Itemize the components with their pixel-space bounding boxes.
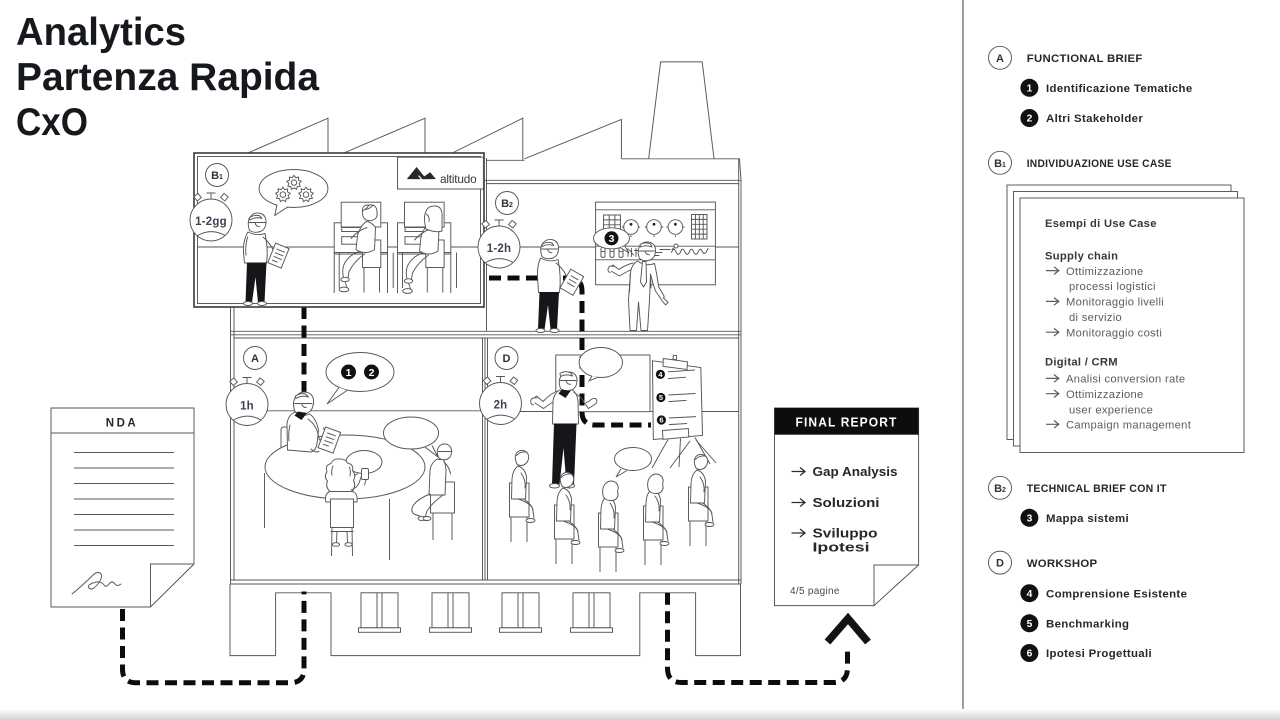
svg-text:A: A: [251, 353, 259, 365]
svg-text:D: D: [996, 558, 1004, 570]
svg-text:1-2gg: 1-2gg: [195, 216, 227, 228]
svg-text:FUNCTIONAL BRIEF: FUNCTIONAL BRIEF: [1027, 53, 1143, 65]
svg-text:Digital / CRM: Digital / CRM: [1045, 356, 1118, 368]
svg-text:Altri Stakeholder: Altri Stakeholder: [1046, 113, 1143, 125]
svg-text:4/5 pagine: 4/5 pagine: [790, 586, 840, 597]
svg-text:NDA: NDA: [106, 418, 138, 430]
svg-text:Ottimizzazione: Ottimizzazione: [1066, 389, 1144, 401]
svg-text:Monitoraggio livelli: Monitoraggio livelli: [1066, 297, 1164, 309]
svg-text:Comprensione Esistente: Comprensione Esistente: [1046, 588, 1187, 600]
svg-text:Identificazione Tematiche: Identificazione Tematiche: [1046, 83, 1193, 95]
svg-text:Sviluppo: Sviluppo: [813, 526, 878, 540]
svg-text:Ottimizzazione: Ottimizzazione: [1066, 266, 1144, 278]
svg-text:processi logistici: processi logistici: [1069, 281, 1156, 293]
svg-text:user experience: user experience: [1069, 404, 1153, 416]
svg-text:2h: 2h: [494, 400, 508, 412]
svg-text:2: 2: [1027, 114, 1033, 125]
svg-text:FINAL REPORT: FINAL REPORT: [796, 415, 898, 430]
svg-text:1: 1: [346, 367, 352, 379]
svg-text:5: 5: [1027, 619, 1033, 630]
svg-text:A: A: [996, 53, 1004, 65]
svg-text:4: 4: [1027, 589, 1033, 600]
svg-text:WORKSHOP: WORKSHOP: [1027, 558, 1098, 570]
svg-text:1-2h: 1-2h: [487, 243, 511, 255]
svg-text:Partenza Rapida: Partenza Rapida: [16, 56, 320, 99]
svg-text:Monitoraggio costi: Monitoraggio costi: [1066, 327, 1162, 339]
svg-text:2: 2: [369, 367, 375, 379]
svg-text:Ipotesi: Ipotesi: [813, 541, 870, 555]
svg-text:6: 6: [659, 416, 663, 425]
svg-text:CxO: CxO: [16, 101, 88, 144]
svg-text:Supply chain: Supply chain: [1045, 250, 1118, 262]
svg-text:3: 3: [1027, 513, 1033, 524]
svg-text:Esempi di Use Case: Esempi di Use Case: [1045, 218, 1157, 230]
svg-text:1: 1: [1027, 83, 1033, 94]
svg-text:D: D: [503, 353, 511, 365]
svg-text:di servizio: di servizio: [1069, 312, 1122, 324]
svg-text:Soluzioni: Soluzioni: [813, 496, 880, 510]
svg-text:Mappa sistemi: Mappa sistemi: [1046, 513, 1129, 525]
svg-text:6: 6: [1027, 649, 1033, 660]
svg-text:Campaign management: Campaign management: [1066, 420, 1192, 432]
svg-text:Benchmarking: Benchmarking: [1046, 619, 1129, 631]
svg-text:Ipotesi Progettuali: Ipotesi Progettuali: [1046, 648, 1152, 660]
svg-text:Analisi conversion rate: Analisi conversion rate: [1066, 374, 1185, 386]
svg-text:1h: 1h: [240, 401, 254, 413]
svg-text:INDIVIDUAZIONE USE CASE: INDIVIDUAZIONE USE CASE: [1027, 158, 1172, 170]
svg-text:TECHNICAL BRIEF CON IT: TECHNICAL BRIEF CON IT: [1027, 483, 1167, 495]
svg-text:Analytics: Analytics: [16, 11, 186, 54]
svg-text:3: 3: [609, 233, 615, 245]
svg-text:5: 5: [659, 393, 663, 402]
svg-text:altitudo: altitudo: [440, 172, 477, 186]
svg-text:Gap Analysis: Gap Analysis: [813, 465, 898, 479]
